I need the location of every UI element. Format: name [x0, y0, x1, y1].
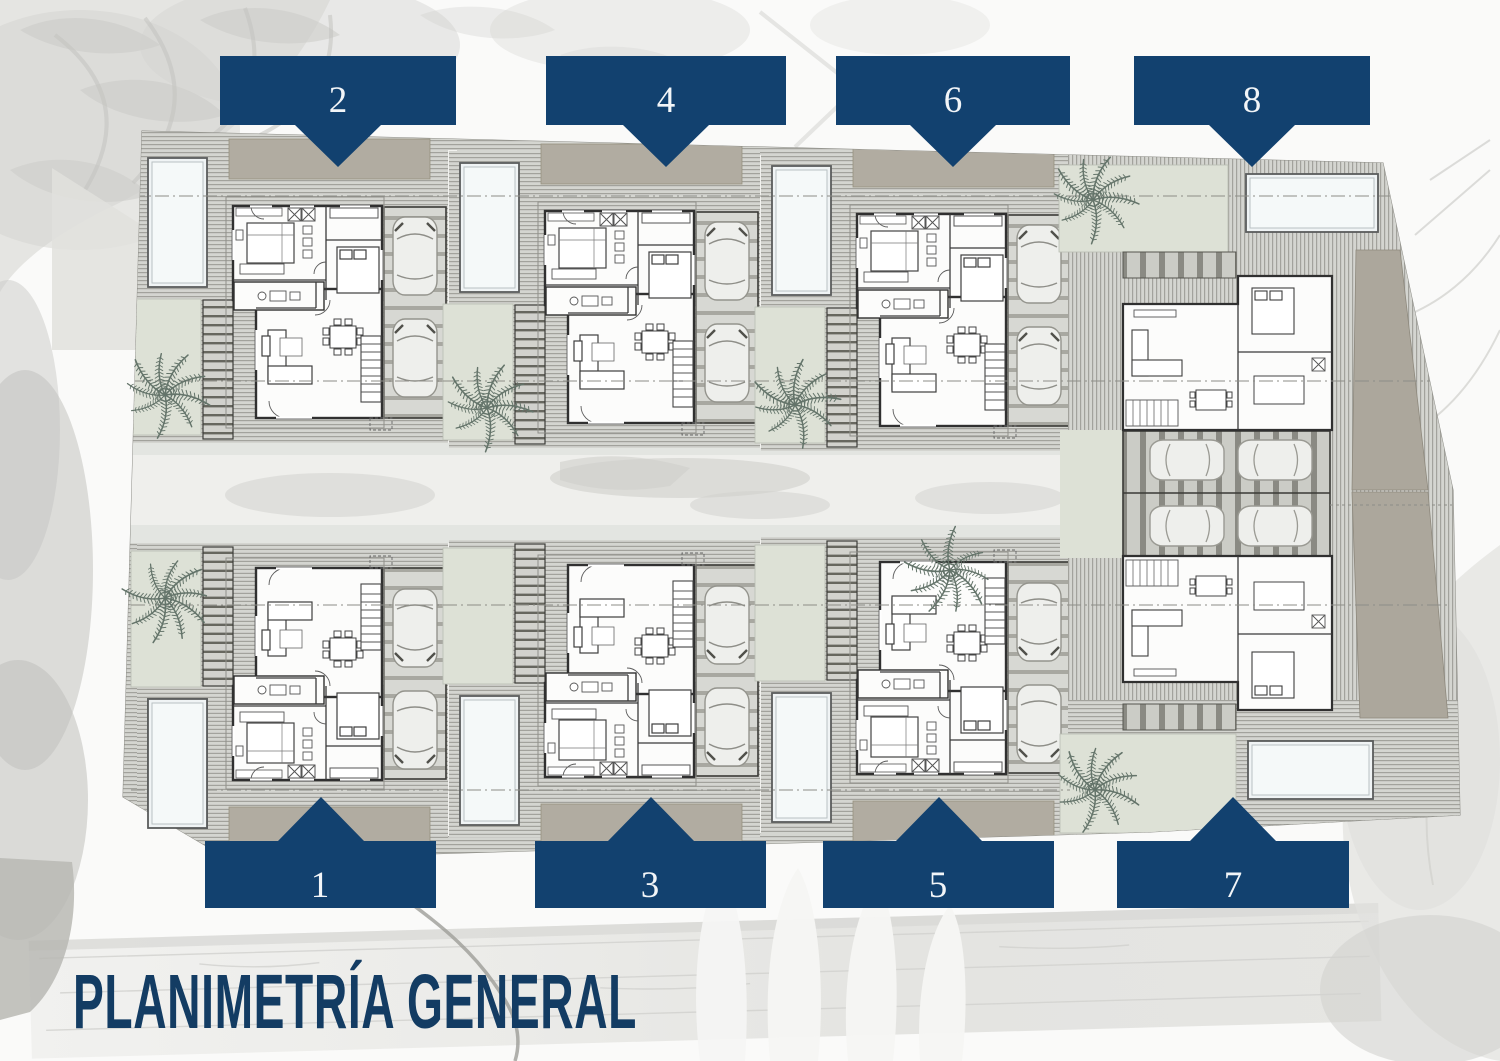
- svg-text:4: 4: [657, 80, 676, 121]
- svg-text:PLANIMETRÍA GENERAL: PLANIMETRÍA GENERAL: [73, 960, 637, 1045]
- svg-text:8: 8: [1243, 80, 1262, 121]
- svg-text:6: 6: [944, 80, 963, 121]
- svg-text:1: 1: [311, 865, 330, 906]
- svg-text:7: 7: [1224, 865, 1243, 906]
- svg-text:5: 5: [929, 865, 948, 906]
- svg-text:3: 3: [641, 865, 660, 906]
- svg-text:2: 2: [329, 80, 348, 121]
